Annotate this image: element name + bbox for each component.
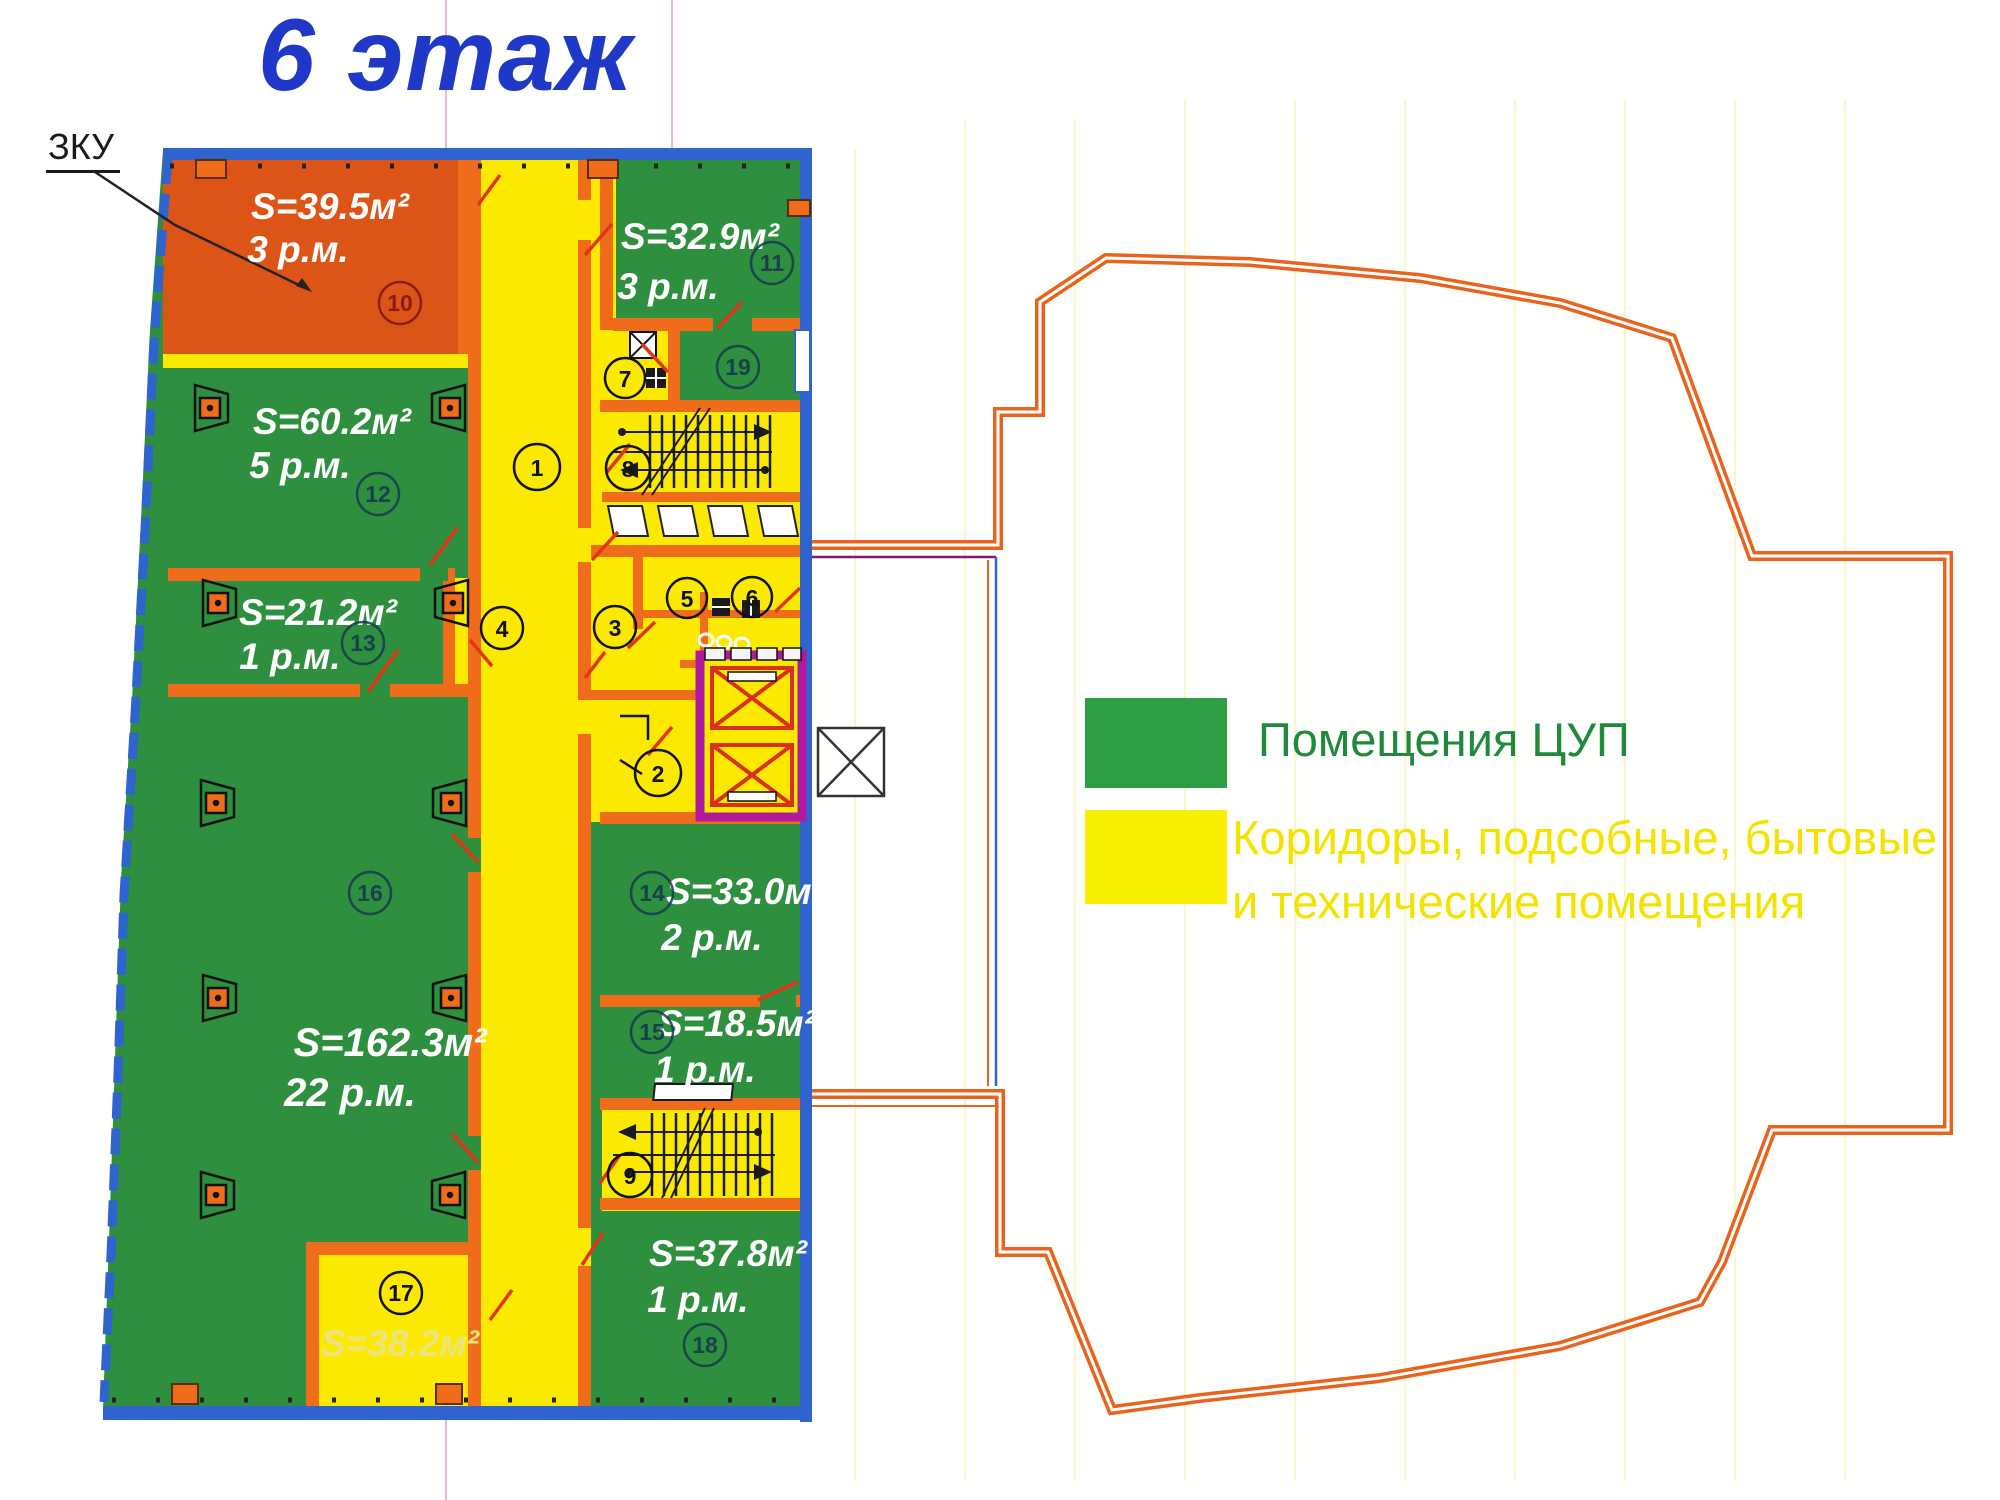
room15-number: 15	[639, 1019, 665, 1045]
legend-label-service-line2: и технические помещения	[1232, 870, 1805, 934]
room10-places: 3 р.м.	[247, 229, 348, 270]
zone8-number: 8	[622, 456, 635, 482]
room12-number: 12	[365, 481, 391, 507]
room16-area: S=162.3м²	[293, 1021, 488, 1065]
room15-places: 1 р.м.	[654, 1049, 755, 1090]
room15-area: S=18.5м²	[658, 1003, 818, 1044]
room17-area: S=38.2м²	[321, 1323, 481, 1364]
room16-places: 22 р.м.	[283, 1071, 416, 1115]
zone5-number: 5	[681, 586, 694, 612]
zone3-number: 3	[609, 615, 622, 641]
room10-area: S=39.5м²	[251, 186, 411, 227]
room18-area: S=37.8м²	[649, 1233, 809, 1274]
zone2-number: 2	[652, 761, 665, 787]
room12-places: 5 р.м.	[249, 445, 350, 486]
page-title: 6 этаж	[258, 0, 634, 110]
room14-places: 2 р.м.	[660, 917, 762, 958]
zone7-number: 7	[619, 366, 632, 392]
room14-number: 14	[639, 880, 665, 906]
zku-annotation: ЗКУ	[46, 126, 120, 173]
zone6-number: 6	[746, 585, 759, 611]
room16-number: 16	[357, 880, 383, 906]
zone4-number: 4	[496, 616, 509, 642]
room18-number: 18	[692, 1332, 718, 1358]
room18-places: 1 р.м.	[647, 1279, 748, 1320]
legend-label-service-line1: Коридоры, подсобные, бытовые	[1232, 806, 1937, 870]
elevator-block	[700, 655, 802, 817]
room13-places: 1 р.м.	[239, 636, 340, 677]
room14-area: S=33.0м²	[666, 871, 826, 912]
room12-area: S=60.2м²	[253, 401, 413, 442]
room13-number: 13	[350, 630, 376, 656]
legend-swatch-service	[1085, 810, 1227, 904]
corridor-fill	[468, 150, 591, 1415]
zone9-number: 9	[624, 1163, 637, 1189]
stairwell9-fill	[602, 1105, 804, 1211]
legend-label-cup: Помещения ЦУП	[1258, 708, 1630, 772]
room17-number: 17	[388, 1280, 414, 1306]
room11-area: S=32.9м²	[621, 216, 781, 257]
room11-places: 3 р.м.	[617, 266, 718, 307]
room19-number: 19	[725, 354, 751, 380]
floor-plan-drawing: S=39.5м² 3 р.м. S=60.2м² 5 р.м. S=21.2м²…	[0, 0, 2000, 1500]
legend-swatch-cup	[1085, 698, 1227, 788]
zone1-number: 1	[531, 455, 544, 481]
floor-plan-page: S=39.5м² 3 р.м. S=60.2м² 5 р.м. S=21.2м²…	[0, 0, 2000, 1500]
external-shaft-symbol	[818, 728, 884, 796]
room10-number: 10	[387, 290, 413, 316]
room11-number: 11	[760, 250, 785, 276]
